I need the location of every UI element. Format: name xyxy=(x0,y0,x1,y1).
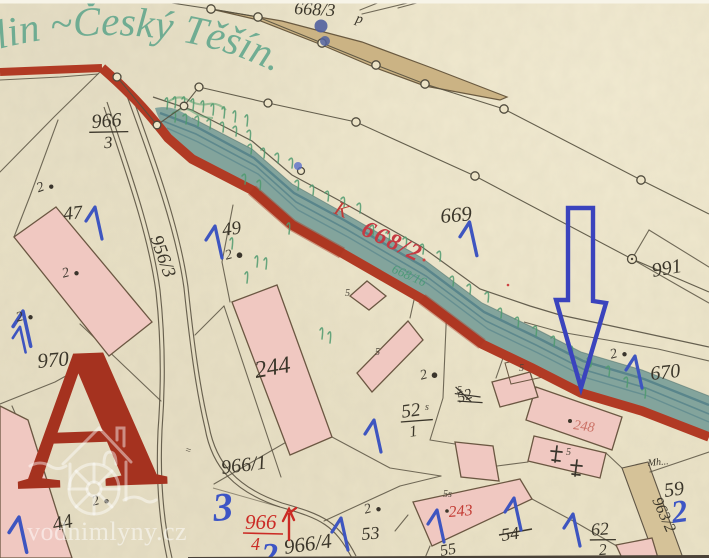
svg-text:966: 966 xyxy=(91,109,122,133)
svg-text:5: 5 xyxy=(345,288,350,299)
svg-text:248: 248 xyxy=(572,418,595,436)
svg-text:3: 3 xyxy=(210,483,235,530)
svg-text:53: 53 xyxy=(361,522,381,543)
svg-text:5: 5 xyxy=(375,347,380,358)
svg-text:62: 62 xyxy=(590,518,610,539)
svg-text:55: 55 xyxy=(439,540,458,558)
svg-text:2: 2 xyxy=(260,537,278,558)
svg-text:47: 47 xyxy=(62,202,85,225)
svg-text:670: 670 xyxy=(649,360,681,385)
svg-text:Mh...: Mh... xyxy=(646,456,669,469)
svg-text:5: 5 xyxy=(519,363,524,374)
svg-text:49: 49 xyxy=(221,217,243,241)
svg-text:4: 4 xyxy=(251,534,260,554)
svg-text:s: s xyxy=(425,402,429,413)
svg-text:3: 3 xyxy=(102,133,113,153)
svg-text:966: 966 xyxy=(245,510,277,534)
svg-text:243: 243 xyxy=(448,502,473,521)
svg-text:vodnimlyny.cz: vodnimlyny.cz xyxy=(27,517,187,546)
svg-text:A: A xyxy=(10,303,171,533)
svg-text:52: 52 xyxy=(400,399,422,423)
svg-text:5s: 5s xyxy=(443,489,452,500)
svg-text:5: 5 xyxy=(566,447,571,458)
